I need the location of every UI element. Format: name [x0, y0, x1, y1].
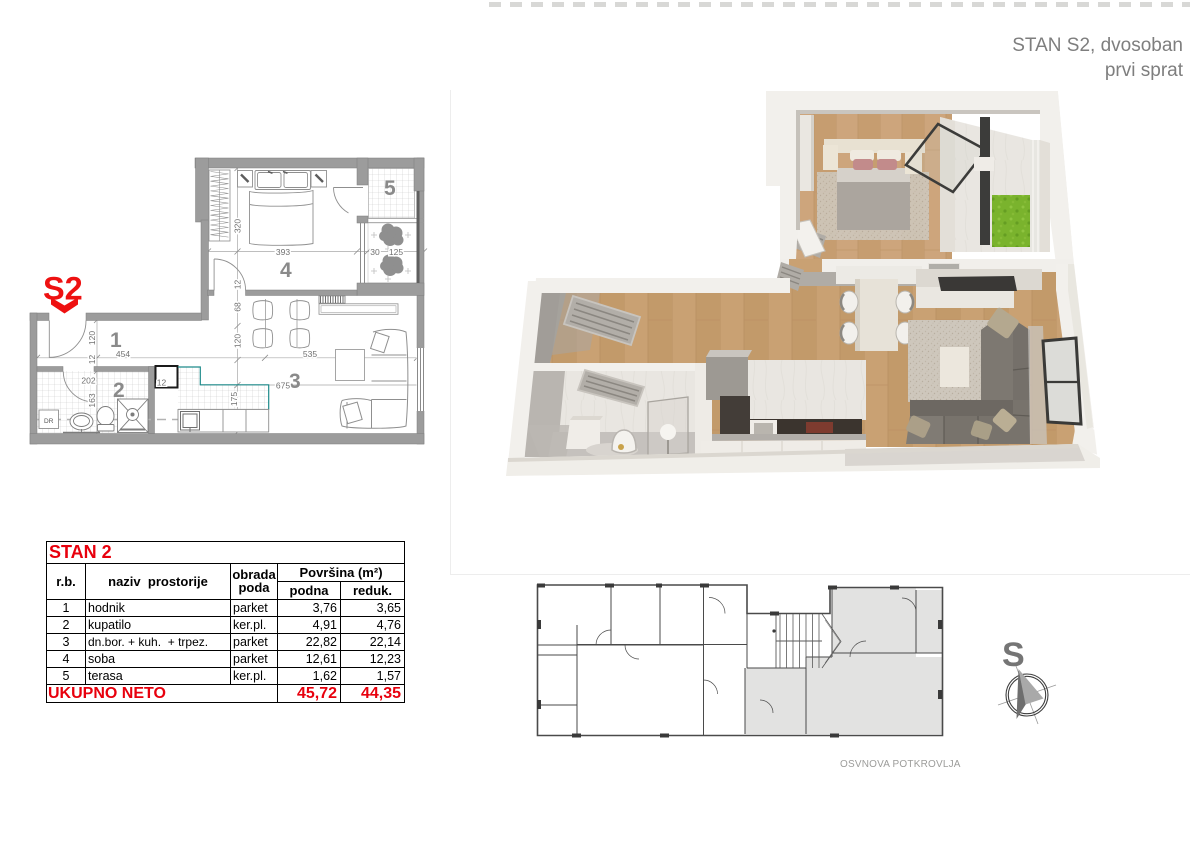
- svg-text:120: 120: [233, 334, 243, 348]
- svg-text:68: 68: [233, 302, 243, 312]
- svg-text:125: 125: [389, 247, 403, 257]
- svg-text:454: 454: [116, 349, 130, 359]
- svg-text:3: 3: [289, 370, 301, 393]
- svg-text:393: 393: [276, 247, 290, 257]
- svg-text:175: 175: [229, 392, 239, 406]
- svg-text:12: 12: [157, 378, 167, 388]
- svg-text:163: 163: [87, 393, 97, 407]
- svg-text:535: 535: [303, 349, 317, 359]
- svg-text:675: 675: [276, 380, 290, 390]
- svg-text:S: S: [1002, 636, 1025, 674]
- svg-text:12: 12: [233, 280, 243, 290]
- svg-text:12: 12: [87, 355, 97, 365]
- svg-text:DR: DR: [44, 418, 54, 425]
- svg-text:5: 5: [384, 177, 396, 200]
- svg-text:2: 2: [113, 379, 125, 402]
- svg-text:320: 320: [233, 219, 243, 233]
- svg-text:4: 4: [280, 259, 292, 282]
- svg-text:202: 202: [81, 376, 95, 386]
- svg-text:30: 30: [370, 247, 380, 257]
- svg-text:120: 120: [87, 331, 97, 345]
